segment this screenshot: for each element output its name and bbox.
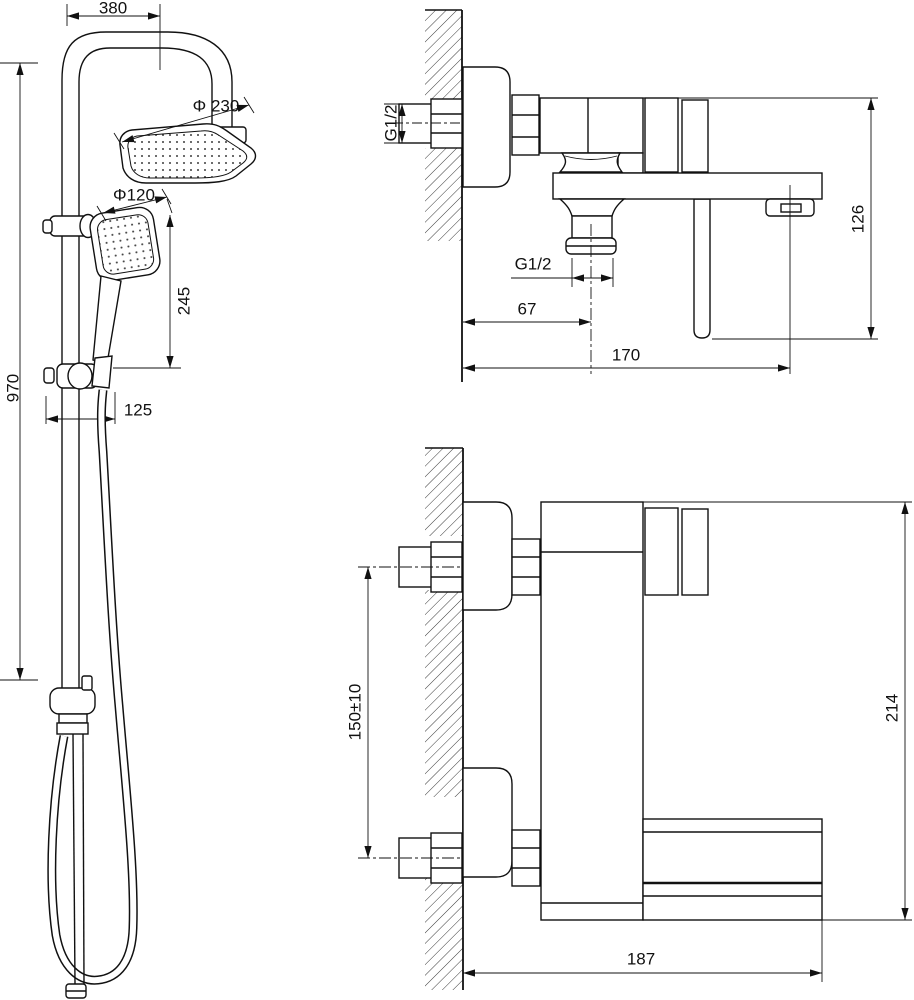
wall-hatch-upper [425,10,462,100]
mixer-body-side [540,98,643,153]
shower-column-view: Φ 230 380 Φ120 245 [0,0,256,998]
dim-body-drop-label: 126 [849,205,868,233]
dim-outlet-offset-label: 67 [518,300,537,319]
dim-height-label: 970 [4,374,23,402]
wall-hatch-middle [425,590,463,797]
wall-escutcheon [463,67,510,187]
dim-arm-reach-label: 380 [99,0,127,18]
dim-hand-diameter-tick-right [162,189,171,204]
spout-side [553,173,822,199]
outlet-upper-waist [560,153,622,172]
dim-overall-height-label: 214 [883,694,902,722]
diverter-stub [82,676,92,690]
hex-nut-upper [512,539,540,595]
connection-hex-nut [512,95,539,155]
spout-front [643,819,822,920]
lower-bracket-ring [68,363,92,389]
dim-spout-reach-label: 170 [612,346,640,365]
escutcheon-lower [463,768,512,877]
handle-lever-top-side [682,100,708,172]
mixer-body-front [541,502,643,920]
handle-base-front [645,508,678,595]
hex-nut-lower [512,830,540,886]
rail-bottom-tee [50,688,95,714]
drop-pipe-right-line [83,734,84,984]
dim-head-diameter-tick-right [244,97,254,113]
inlet-pipe [399,104,432,143]
hand-shower-head [88,205,162,282]
hose-nut-upper [59,714,87,723]
dim-overall-width-label: 187 [627,950,655,969]
dim-head-diameter-label: Φ 230 [193,97,240,116]
outlet-cylinder [572,216,612,238]
dim-outlet-thread-label: G1/2 [515,255,552,274]
upper-bracket-knob [43,220,52,233]
dim-hand-length-label: 245 [175,287,194,315]
hand-shower-grip [93,276,121,364]
dim-inlet-thread-label: G1/2 [382,105,401,142]
body-right-extension [618,153,643,173]
escutcheon-upper [463,502,512,610]
inlet-hex-fitting [431,99,462,148]
mixer-front-view: 150±10 214 187 [346,448,913,990]
mixer-side-view: G1/2 G1/2 67 [382,10,879,382]
lower-bracket-knob [44,368,54,383]
hand-shower-face [96,213,155,275]
handle-lever-down-side [694,199,710,338]
technical-drawing: Φ 230 380 Φ120 245 [0,0,914,1000]
dim-bracket-label: 125 [124,401,152,420]
handle-lever-front [682,509,708,595]
outlet-lower-flare [560,199,624,216]
dim-inlet-spacing-label: 150±10 [346,684,365,741]
aerator-notch [781,204,801,212]
wall-hatch-lower [425,148,462,241]
handle-base-side [645,98,678,172]
drop-pipe-left-line [73,734,75,984]
wall-hatch-top [425,448,463,536]
dim-hand-diameter-label: Φ120 [113,186,155,205]
hose-nut-lower [57,723,88,734]
grip-end-cone [92,356,112,388]
drawing-sheet: Φ 230 380 Φ120 245 [0,0,914,1000]
